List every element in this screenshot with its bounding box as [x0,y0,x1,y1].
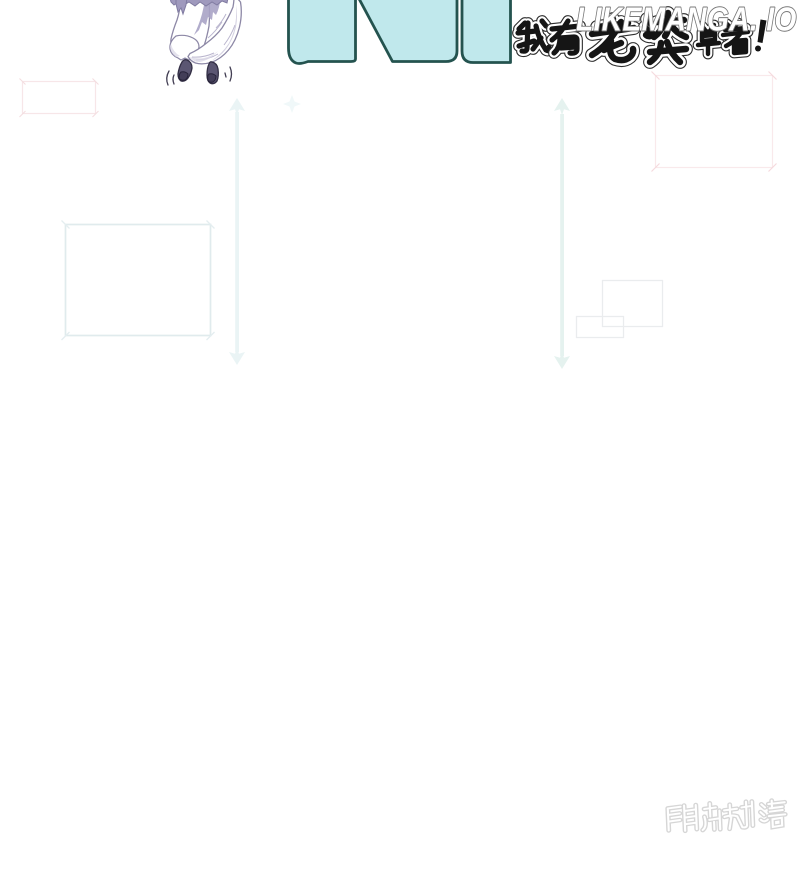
svg-text:LIKEMANGA. IO: LIKEMANGA. IO [576,0,797,38]
